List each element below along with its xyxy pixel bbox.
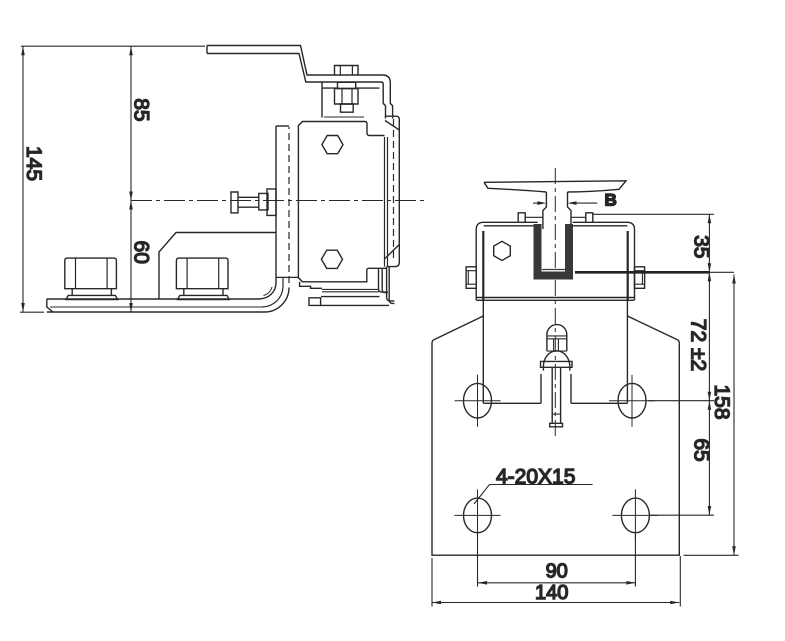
svg-text:145: 145	[22, 146, 45, 181]
svg-text:65: 65	[690, 438, 713, 461]
svg-text:72 ±2: 72 ±2	[687, 319, 710, 371]
svg-text:90: 90	[546, 560, 568, 582]
svg-text:35: 35	[690, 235, 713, 258]
svg-text:85: 85	[130, 98, 153, 121]
svg-text:158: 158	[710, 384, 733, 419]
svg-text:B: B	[605, 191, 617, 210]
svg-text:60: 60	[130, 241, 153, 264]
svg-text:140: 140	[535, 582, 568, 604]
